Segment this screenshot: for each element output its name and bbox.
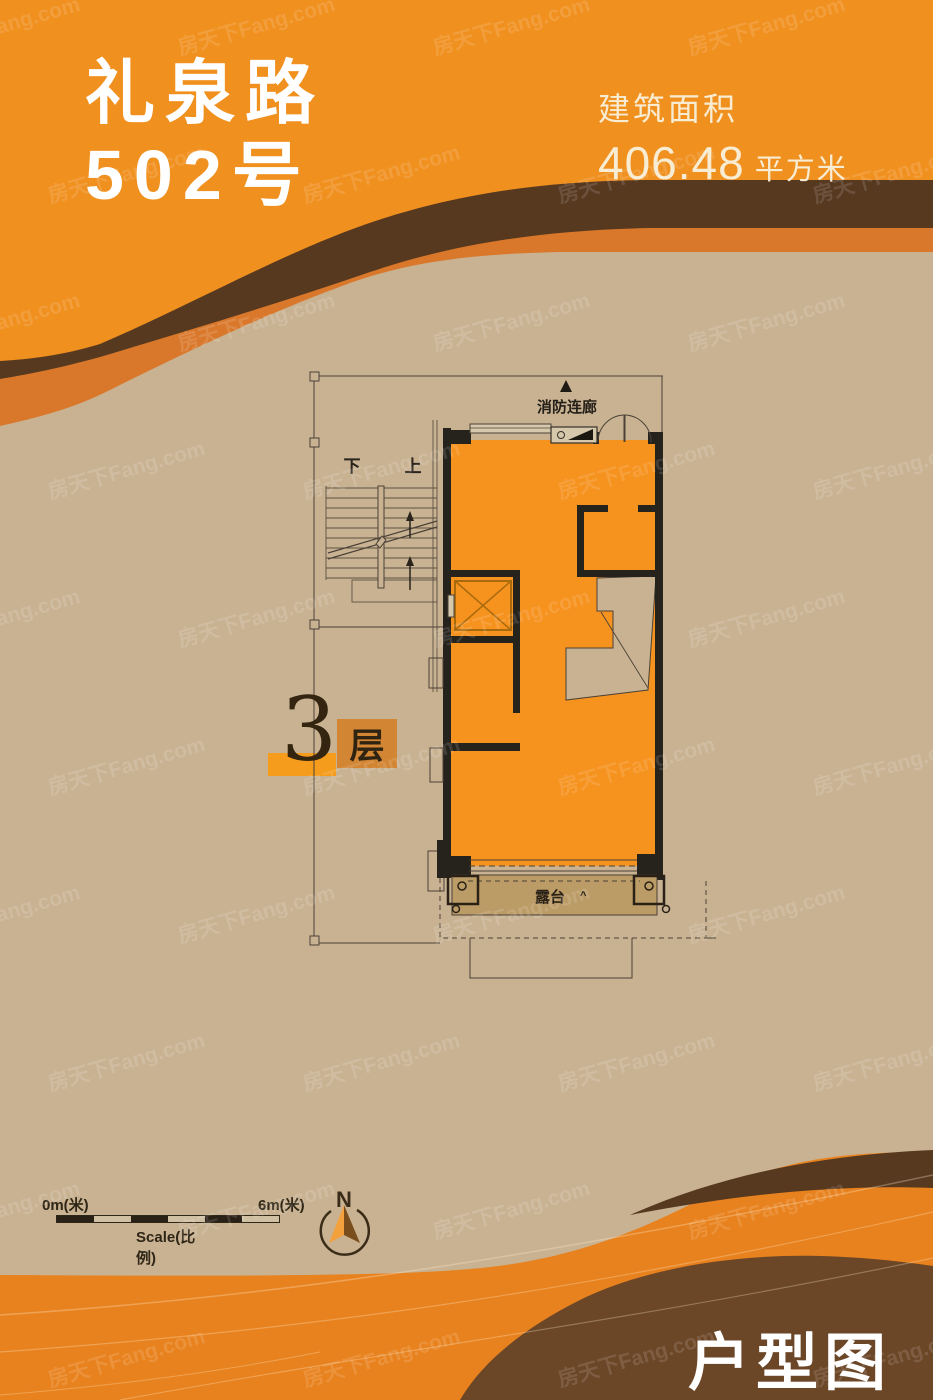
poster-page: 礼泉路 502号 建筑面积 406.48平方米 3 层: [0, 0, 933, 1400]
window: [470, 424, 551, 433]
north-triangle-marker: [560, 380, 572, 392]
floor-plan: 下 上: [290, 365, 740, 1000]
terrace-label: 露台: [535, 888, 565, 906]
fire-corridor: 消防连廊: [537, 380, 597, 416]
title-line-1: 礼泉路: [85, 52, 325, 134]
page-title: 礼泉路 502号: [85, 52, 325, 216]
title-line-2: 502号: [85, 134, 325, 216]
compass-north-label: N: [336, 1187, 352, 1212]
area-label: 建筑面积: [598, 84, 848, 130]
scale-start-label: 0m(米): [42, 1194, 89, 1215]
fire-corridor-label: 消防连廊: [537, 398, 597, 416]
wall-corner: [437, 840, 451, 878]
terrace-mark: ^: [580, 890, 587, 902]
elevator-shaft: [448, 581, 511, 630]
compass: N: [310, 1185, 390, 1265]
scale-end-label: 6m(米): [258, 1194, 305, 1215]
area-block: 建筑面积 406.48平方米: [598, 84, 848, 190]
footer-title: 户型图: [688, 1312, 892, 1400]
area-unit: 平方米: [755, 154, 848, 186]
floor-number: 3: [281, 686, 337, 774]
stairs-down-label: 下: [344, 457, 361, 476]
scale-track: [56, 1215, 280, 1223]
area-line: 406.48平方米: [598, 136, 848, 190]
stairs-up-label: 上: [405, 457, 422, 476]
double-door: [598, 415, 651, 442]
scale-caption: Scale(比例): [136, 1226, 195, 1268]
stairs: 下 上: [326, 420, 437, 692]
terrace: 露台 ^: [448, 875, 670, 915]
area-value: 406.48: [598, 137, 745, 189]
vent-box: [551, 427, 597, 443]
